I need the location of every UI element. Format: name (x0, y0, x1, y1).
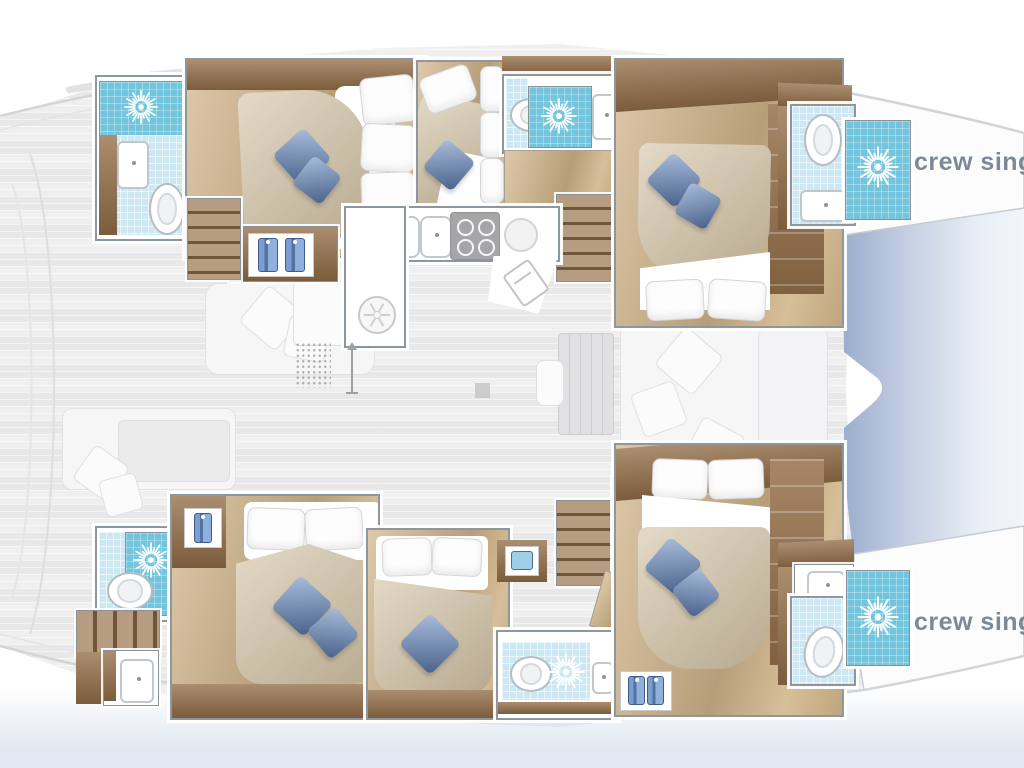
bed-pillow (480, 158, 504, 204)
bed-pillow (431, 537, 483, 578)
toilet-icon (149, 183, 185, 235)
bed-pillow (359, 73, 418, 126)
washer-icon (358, 296, 396, 334)
vanity-cabinet (104, 651, 116, 701)
stove-burner (457, 219, 474, 236)
hull-side-cabinet (172, 684, 378, 718)
hanging-towel-icon (258, 238, 278, 272)
hanging-towel-icon (628, 676, 645, 705)
transom-curve-inner (12, 184, 32, 598)
bathroom-port-mid (502, 74, 620, 154)
bed-pillow (381, 537, 432, 577)
galley-side-cabinet (293, 280, 347, 346)
bed-pillow (360, 123, 416, 174)
bed-pillow (645, 279, 705, 322)
crew-single-label-top: crew single (914, 150, 1024, 175)
cabinet (76, 652, 104, 704)
stove-icon (450, 212, 500, 260)
vanity-starboard-aft (103, 650, 159, 706)
shower-icon (545, 651, 587, 693)
hanging-towel-icon (194, 513, 212, 543)
small-sink-icon (511, 551, 533, 570)
crew-shower-top (845, 120, 911, 220)
stove-burner (478, 239, 495, 256)
cabinet (498, 702, 612, 714)
mast-step-grid (295, 342, 331, 388)
galley-sink-icon (420, 216, 452, 258)
bathroom-port-aft (95, 75, 192, 241)
hanging-towel-icon (647, 676, 664, 705)
sink-icon (120, 659, 154, 703)
bed-pillow (480, 66, 504, 112)
stove-burner (478, 219, 495, 236)
stairs-port-hull (187, 198, 241, 280)
stove-burner (457, 239, 474, 256)
shower-icon (122, 88, 160, 126)
toilet-icon (107, 572, 153, 610)
hanging-towel-icon (285, 238, 305, 272)
up-arrow-icon (351, 346, 353, 392)
shower-icon (855, 594, 901, 640)
cabin-port-mid (416, 60, 508, 216)
round-hob-icon (504, 218, 538, 252)
saloon-stool (475, 383, 490, 398)
sink-icon (117, 141, 149, 189)
toilet-icon (799, 622, 849, 681)
shower-icon (855, 144, 901, 190)
toilet-icon (804, 114, 842, 166)
vanity-cabinet (99, 135, 117, 235)
cabin-starboard-mid (366, 528, 510, 720)
sink-icon (800, 190, 848, 222)
sink-icon (592, 662, 614, 694)
catamaran-floor-plan: crew single crew single (0, 0, 1024, 768)
wardrobe-port-aft (229, 226, 338, 282)
saloon-table (558, 333, 614, 435)
bed-pillow (707, 458, 764, 500)
cabin-starboard-aft (170, 494, 380, 720)
bed-pillow (651, 458, 708, 500)
galley-left-arm (344, 206, 406, 348)
stairs-galley-port (556, 194, 616, 282)
bed-pillow (707, 278, 768, 322)
hull-side-cabinet (368, 690, 508, 718)
water-between-hulls (838, 208, 1024, 554)
saloon-bench (536, 360, 564, 406)
bed-pillow (480, 112, 504, 158)
lounger-mattress (118, 420, 230, 482)
wall-cabinet (502, 56, 616, 76)
crew-shower-bottom (846, 570, 910, 666)
crew-single-label-bottom: crew single (914, 610, 1024, 635)
bed-pillow (246, 507, 305, 551)
bed-pillow (304, 507, 364, 552)
bathroom-starboard-mid (496, 630, 618, 720)
shower-icon (539, 96, 579, 136)
transom-curve-outer (30, 154, 54, 634)
